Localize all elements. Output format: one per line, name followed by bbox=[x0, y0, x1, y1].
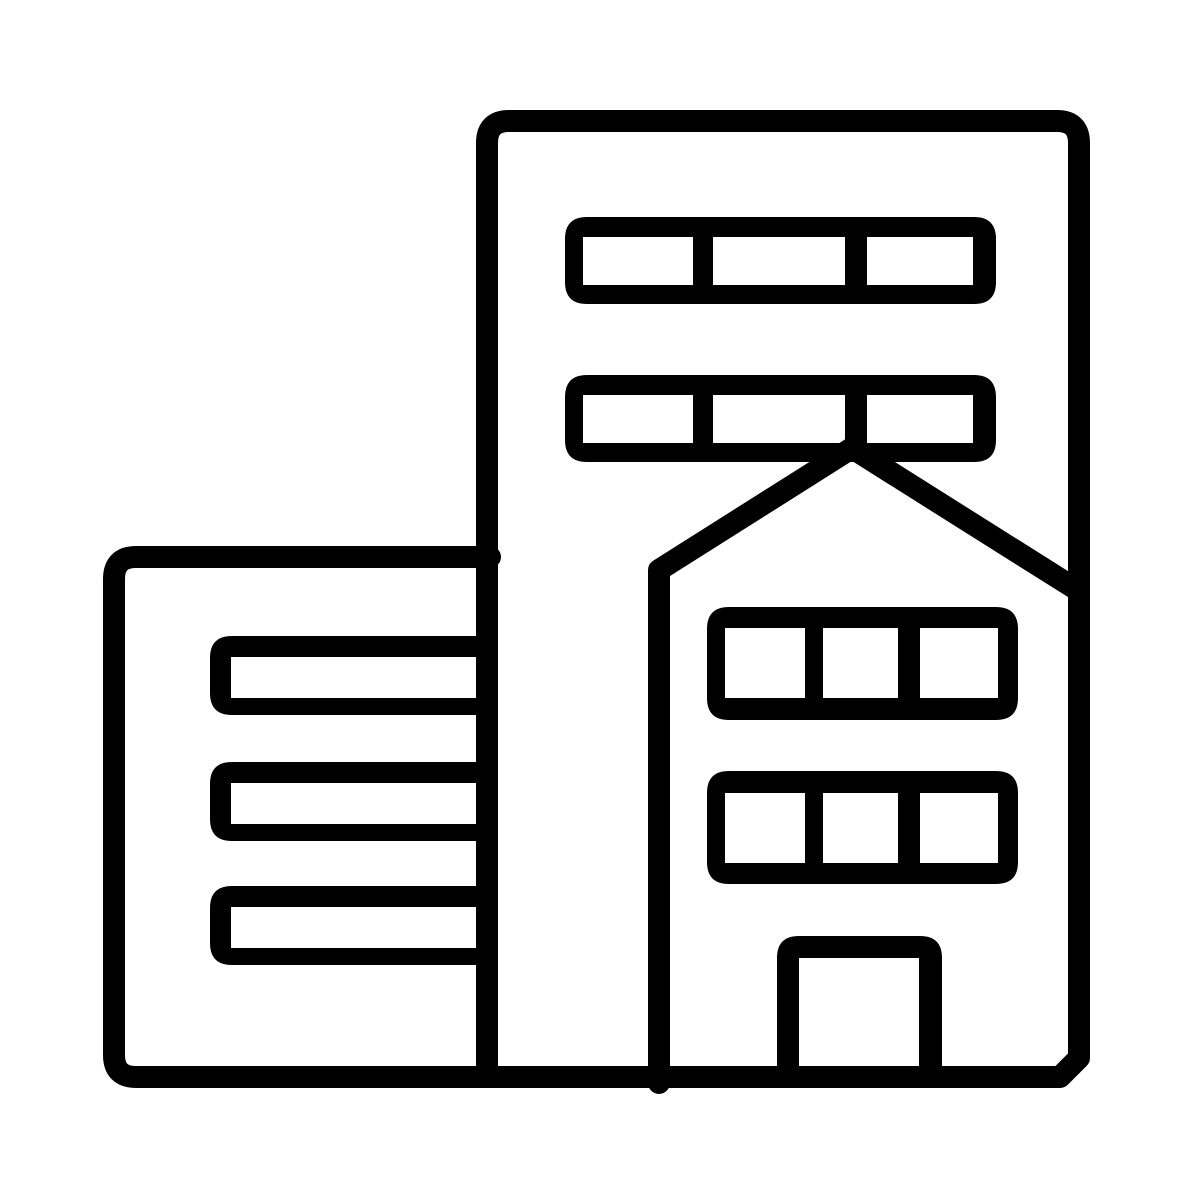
house-strip2-pane-2 bbox=[823, 793, 898, 863]
house-strip2-pane-1 bbox=[725, 793, 805, 863]
house-strip1-pane-2 bbox=[823, 628, 898, 698]
tower-strip1-pane-1 bbox=[583, 237, 693, 285]
tower-strip2-pane-3 bbox=[867, 395, 973, 443]
tower-strip2-pane-1 bbox=[583, 395, 693, 443]
annex-window-pane-3 bbox=[231, 907, 477, 948]
tower-strip2-pane-2 bbox=[713, 395, 845, 443]
page-background bbox=[0, 0, 1200, 1198]
annex-window-pane-1 bbox=[231, 657, 477, 698]
icon-stage bbox=[0, 0, 1200, 1198]
tower-strip1-pane-3 bbox=[867, 237, 973, 285]
house-strip1-pane-1 bbox=[725, 628, 805, 698]
city-buildings-icon bbox=[0, 0, 1200, 1198]
house-strip2-pane-3 bbox=[920, 793, 998, 863]
tower-strip1-pane-2 bbox=[713, 237, 845, 285]
house-strip1-pane-3 bbox=[920, 628, 998, 698]
annex-window-pane-2 bbox=[231, 783, 477, 824]
house-door-pane bbox=[799, 958, 919, 1066]
